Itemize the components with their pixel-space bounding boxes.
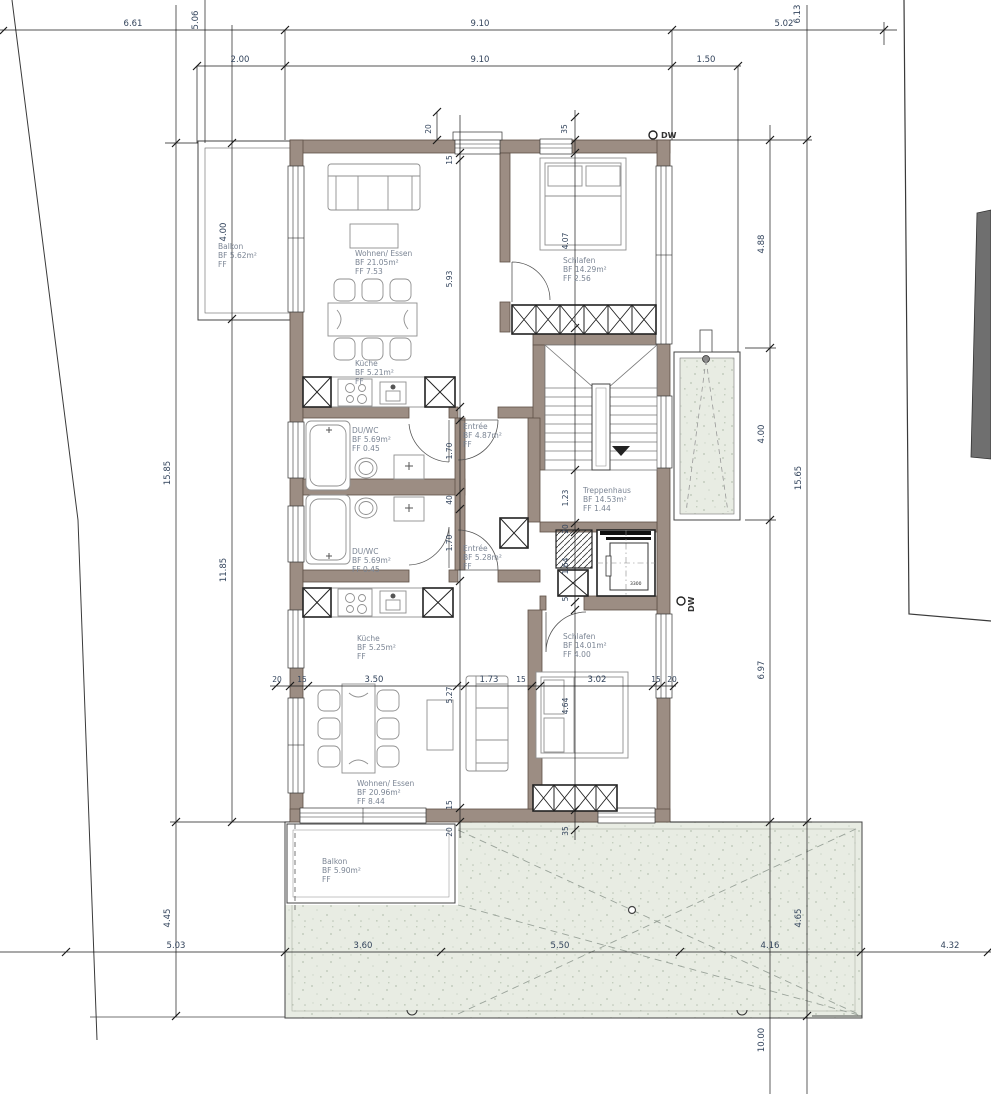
dim-top-9-10: 9.10 bbox=[471, 19, 490, 29]
svg-text:Küche: Küche bbox=[355, 359, 378, 368]
dw-label-top: DW bbox=[661, 131, 677, 140]
coffee-table-bottom bbox=[427, 700, 453, 750]
dim-1-70a: 1.70 bbox=[445, 442, 454, 459]
dim-3-02: 3.02 bbox=[588, 675, 607, 685]
svg-text:Entrée: Entrée bbox=[463, 544, 488, 553]
dim-3-50: 3.50 bbox=[365, 675, 384, 685]
dim-15-65: 15.65 bbox=[794, 466, 804, 490]
dim-top2-9-10: 9.10 bbox=[471, 55, 490, 65]
dw-label-right: DW bbox=[687, 596, 696, 612]
svg-text:FF 2.56: FF 2.56 bbox=[563, 274, 591, 283]
svg-text:Wohnen/ Essen: Wohnen/ Essen bbox=[357, 779, 415, 788]
elevator-note: 3300 bbox=[630, 581, 642, 587]
svg-text:FF 4.00: FF 4.00 bbox=[563, 650, 591, 659]
sofa-top bbox=[328, 164, 420, 210]
dim-15-bottomwall: 15 bbox=[445, 800, 454, 810]
label-wohnen-top: Wohnen/ Essen BF 21.05m² FF 7.53 bbox=[355, 249, 413, 276]
bedroom-bottom-furniture bbox=[533, 672, 628, 811]
dim-5-03: 5.03 bbox=[167, 941, 186, 951]
dim-11-85: 11.85 bbox=[219, 558, 229, 582]
dim-top2-1-50: 1.50 bbox=[697, 55, 716, 65]
floorplan-canvas: 3300 bbox=[0, 0, 991, 1094]
terrace bbox=[90, 822, 862, 1018]
dim-top2-2-00: 2.00 bbox=[231, 55, 250, 65]
neighbor-building-shape bbox=[971, 210, 991, 459]
kitchen-bottom bbox=[303, 588, 453, 617]
svg-text:FF 8.44: FF 8.44 bbox=[357, 797, 385, 806]
dim-4-16: 4.16 bbox=[761, 941, 780, 951]
floorplan-drawing: 3300 bbox=[0, 0, 991, 1094]
dim-1-73: 1.73 bbox=[480, 675, 499, 685]
svg-text:Treppenhaus: Treppenhaus bbox=[582, 486, 631, 495]
svg-text:FF: FF bbox=[463, 440, 472, 449]
kitchen-top bbox=[303, 377, 455, 407]
svg-text:DU/WC: DU/WC bbox=[352, 426, 378, 435]
dim-20-bottomwall: 20 bbox=[445, 827, 454, 837]
svg-text:BF 5.28m²: BF 5.28m² bbox=[463, 553, 502, 562]
svg-text:BF 5.21m²: BF 5.21m² bbox=[355, 368, 394, 377]
svg-text:FF: FF bbox=[218, 260, 227, 269]
dim-1-64: 1.64 bbox=[561, 557, 570, 574]
dim-6-97: 6.97 bbox=[757, 661, 767, 680]
dim-1-70b: 1.70 bbox=[445, 534, 454, 551]
dim-20-core: 20 bbox=[561, 524, 570, 534]
dim-5-93: 5.93 bbox=[445, 270, 454, 287]
svg-text:FF: FF bbox=[357, 652, 366, 661]
svg-text:FF 0.45: FF 0.45 bbox=[352, 565, 380, 574]
svg-text:BF 5.90m²: BF 5.90m² bbox=[322, 866, 361, 875]
dim-4-65: 4.65 bbox=[794, 909, 804, 928]
dim-4-88: 4.88 bbox=[757, 235, 767, 254]
svg-text:Entrée: Entrée bbox=[463, 422, 488, 431]
dim-35-topwall: 35 bbox=[560, 124, 569, 134]
dim-4-00-left: 4.00 bbox=[219, 223, 229, 242]
dim-top-6-61: 6.61 bbox=[124, 19, 143, 29]
svg-text:BF 14.29m²: BF 14.29m² bbox=[563, 265, 607, 274]
label-entree-bottom: Entrée BF 5.28m² FF bbox=[463, 544, 502, 571]
svg-text:BF 4.87m²: BF 4.87m² bbox=[463, 431, 502, 440]
dim-5-06: 5.06 bbox=[191, 11, 201, 30]
dim-mid-15a: 15 bbox=[297, 675, 307, 684]
svg-text:Schlafen: Schlafen bbox=[563, 256, 596, 265]
staircase bbox=[545, 345, 657, 470]
svg-text:BF 14.01m²: BF 14.01m² bbox=[563, 641, 607, 650]
dim-35-bottom: 35 bbox=[561, 826, 570, 836]
dim-15-85: 15.85 bbox=[163, 461, 173, 485]
label-schlafen-top: Schlafen BF 14.29m² FF 2.56 bbox=[563, 256, 607, 283]
svg-text:BF 5.69m²: BF 5.69m² bbox=[352, 556, 391, 565]
dim-4-00-right: 4.00 bbox=[757, 425, 767, 444]
dim-15-topwall: 15 bbox=[445, 155, 454, 165]
dw-circle-right bbox=[677, 597, 685, 605]
wardrobe-top bbox=[512, 305, 656, 334]
dim-4-32: 4.32 bbox=[941, 941, 960, 951]
label-entree-top: Entrée BF 4.87m² FF bbox=[463, 422, 502, 449]
svg-text:Küche: Küche bbox=[357, 634, 380, 643]
svg-text:BF 14.53m²: BF 14.53m² bbox=[583, 495, 627, 504]
dim-40: 40 bbox=[445, 495, 454, 505]
dim-3-60: 3.60 bbox=[354, 941, 373, 951]
svg-text:Balkon: Balkon bbox=[218, 242, 243, 251]
dim-5-core: 5 bbox=[561, 596, 570, 601]
dim-4-64: 4.64 bbox=[561, 697, 570, 714]
svg-text:BF 5.25m²: BF 5.25m² bbox=[357, 643, 396, 652]
svg-text:FF: FF bbox=[463, 562, 472, 571]
svg-text:FF: FF bbox=[322, 875, 331, 884]
svg-text:BF 20.96m²: BF 20.96m² bbox=[357, 788, 401, 797]
balcony-bottom-left bbox=[287, 824, 455, 910]
dw-circle-top bbox=[649, 131, 657, 139]
dim-mid-20b: 20 bbox=[667, 675, 677, 684]
dim-4-07: 4.07 bbox=[561, 232, 570, 249]
dim-1-23: 1.23 bbox=[561, 489, 570, 506]
label-wohnen-bottom: Wohnen/ Essen BF 20.96m² FF 8.44 bbox=[357, 779, 415, 806]
svg-text:DU/WC: DU/WC bbox=[352, 547, 378, 556]
svg-text:BF 21.05m²: BF 21.05m² bbox=[355, 258, 399, 267]
svg-text:FF 1.44: FF 1.44 bbox=[583, 504, 611, 513]
coffee-table-top bbox=[350, 224, 398, 248]
dim-6-13: 6.13 bbox=[793, 5, 803, 24]
svg-text:FF 0.45: FF 0.45 bbox=[352, 444, 380, 453]
svg-text:BF 5.62m²: BF 5.62m² bbox=[218, 251, 257, 260]
svg-text:FF 7.53: FF 7.53 bbox=[355, 267, 383, 276]
label-kueche-bottom: Küche BF 5.25m² FF bbox=[357, 634, 396, 661]
terrace-point-marker bbox=[629, 907, 636, 914]
balcony-right bbox=[674, 330, 740, 520]
dim-mid-20a: 20 bbox=[272, 675, 282, 684]
sofa-bottom bbox=[466, 676, 508, 771]
dim-mid-15c: 15 bbox=[651, 675, 661, 684]
label-duwc-top: DU/WC BF 5.69m² FF 0.45 bbox=[352, 426, 391, 453]
shaft-corridor bbox=[500, 518, 528, 548]
dim-20-topwall: 20 bbox=[424, 124, 433, 134]
dim-10-00: 10.00 bbox=[757, 1028, 767, 1052]
dim-5-27: 5.27 bbox=[445, 686, 454, 703]
svg-text:FF: FF bbox=[355, 377, 364, 386]
dim-5-50: 5.50 bbox=[551, 941, 570, 951]
svg-text:BF 5.69m²: BF 5.69m² bbox=[352, 435, 391, 444]
svg-text:Wohnen/ Essen: Wohnen/ Essen bbox=[355, 249, 413, 258]
dining-table-bottom bbox=[318, 684, 399, 773]
balcony-top-left bbox=[198, 141, 290, 320]
bedroom-top-furniture bbox=[512, 158, 656, 334]
label-schlafen-bottom: Schlafen BF 14.01m² FF 4.00 bbox=[563, 632, 607, 659]
furniture-bottom-apartment bbox=[303, 495, 508, 773]
svg-text:Schlafen: Schlafen bbox=[563, 632, 596, 641]
dim-mid-15b: 15 bbox=[516, 675, 526, 684]
label-treppenhaus: Treppenhaus BF 14.53m² FF 1.44 bbox=[582, 486, 631, 513]
dim-4-45: 4.45 bbox=[163, 909, 173, 928]
dim-top-5-02: 5.02 bbox=[775, 19, 794, 29]
svg-text:Balkon: Balkon bbox=[322, 857, 347, 866]
dining-table-top bbox=[328, 279, 417, 360]
